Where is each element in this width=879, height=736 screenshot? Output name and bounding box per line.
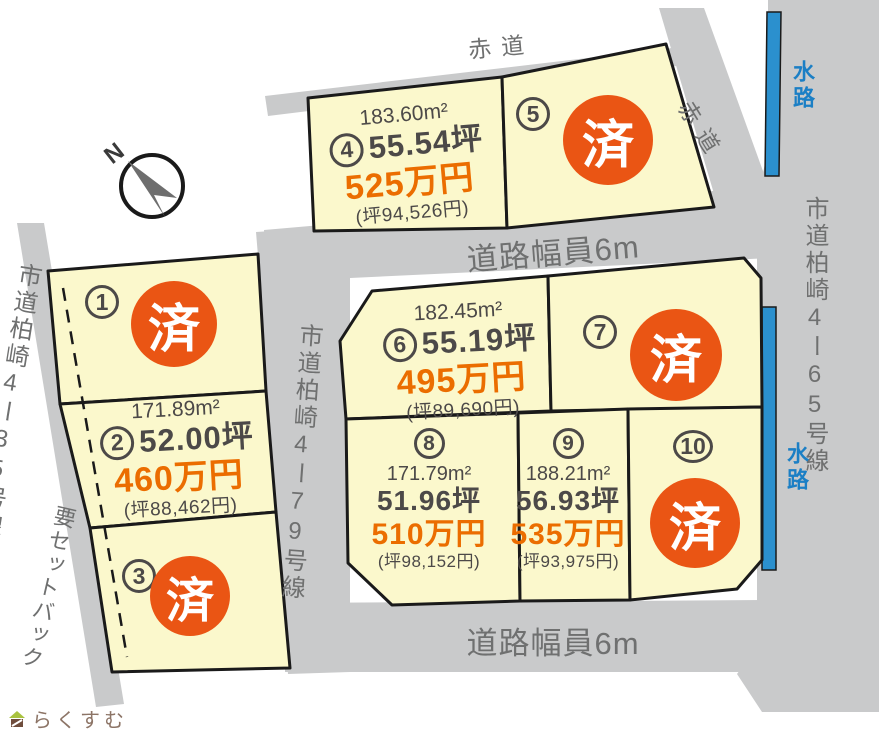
plot-9-area-tsubo: 56.93坪 xyxy=(502,485,634,516)
plot-2-info: 171.89m² 2 52.00坪 460万円 (坪88,462円) xyxy=(85,393,271,524)
house-logo-icon xyxy=(8,710,26,728)
plot-10-sold-badge: 済 xyxy=(650,478,740,568)
plot-9-unit-price: (坪93,975円) xyxy=(502,552,634,571)
plot-8-unit-price: (坪98,152円) xyxy=(350,552,508,571)
plot-1-number: 1 xyxy=(85,285,119,319)
plot-8-number: 8 xyxy=(414,428,445,459)
plot-1-sold-badge: 済 xyxy=(131,281,217,367)
plot-7-sold-badge: 済 xyxy=(630,309,722,401)
plot-6-info: 182.45m² 6 55.19坪 495万円 (坪89,690円) xyxy=(365,295,556,426)
road-label-akamichi-top: 赤道 xyxy=(467,25,536,65)
waterway-top-strip xyxy=(765,12,781,176)
plot-3-sold-badge: 済 xyxy=(150,556,230,636)
waterway-label-top: 水路 xyxy=(786,60,818,112)
waterway-right-strip xyxy=(762,307,776,570)
plot-9-number: 9 xyxy=(553,428,584,459)
plot-8-price: 510万円 xyxy=(350,518,508,552)
plot-10-number: 10 xyxy=(673,430,713,463)
plot-6-number: 6 xyxy=(382,327,418,363)
plot-4-number: 4 xyxy=(328,132,365,169)
logo-text: らくすむ xyxy=(32,704,128,733)
rakusumu-logo: らくすむ xyxy=(8,704,128,733)
compass xyxy=(121,155,183,217)
plot-5-sold-badge: 済 xyxy=(563,95,653,185)
plot-8-info: 8 171.79m² 51.96坪 510万円 (坪98,152円) xyxy=(350,428,508,571)
plot-4-info: 183.60m² 4 55.54坪 525万円 (坪94,526円) xyxy=(313,95,503,232)
land-plot-map: N 赤道 赤道 道路幅員6m 道路幅員6m 市道柏崎4ー35号線 市道柏崎4ー7… xyxy=(0,0,879,736)
plot-7-number: 7 xyxy=(583,315,617,349)
plot-5-number: 5 xyxy=(516,97,550,131)
road-label-width6m-bottom: 道路幅員6m xyxy=(448,618,658,663)
plot-6-area-tsubo: 55.19坪 xyxy=(421,321,537,362)
plot-2-number: 2 xyxy=(99,425,135,461)
road-label-right: 市道柏崎4ー65号線 xyxy=(797,196,832,475)
plot-2-area-tsubo: 52.00坪 xyxy=(138,419,254,460)
plot-9-price: 535万円 xyxy=(502,518,634,552)
waterway-label-right: 水路 xyxy=(780,442,812,494)
plot-8-area-m2: 171.79m² xyxy=(350,463,508,485)
plot-8-area-tsubo: 51.96坪 xyxy=(350,485,508,516)
plot-9-area-m2: 188.21m² xyxy=(502,463,634,485)
plot-9-info: 9 188.21m² 56.93坪 535万円 (坪93,975円) xyxy=(502,428,634,571)
